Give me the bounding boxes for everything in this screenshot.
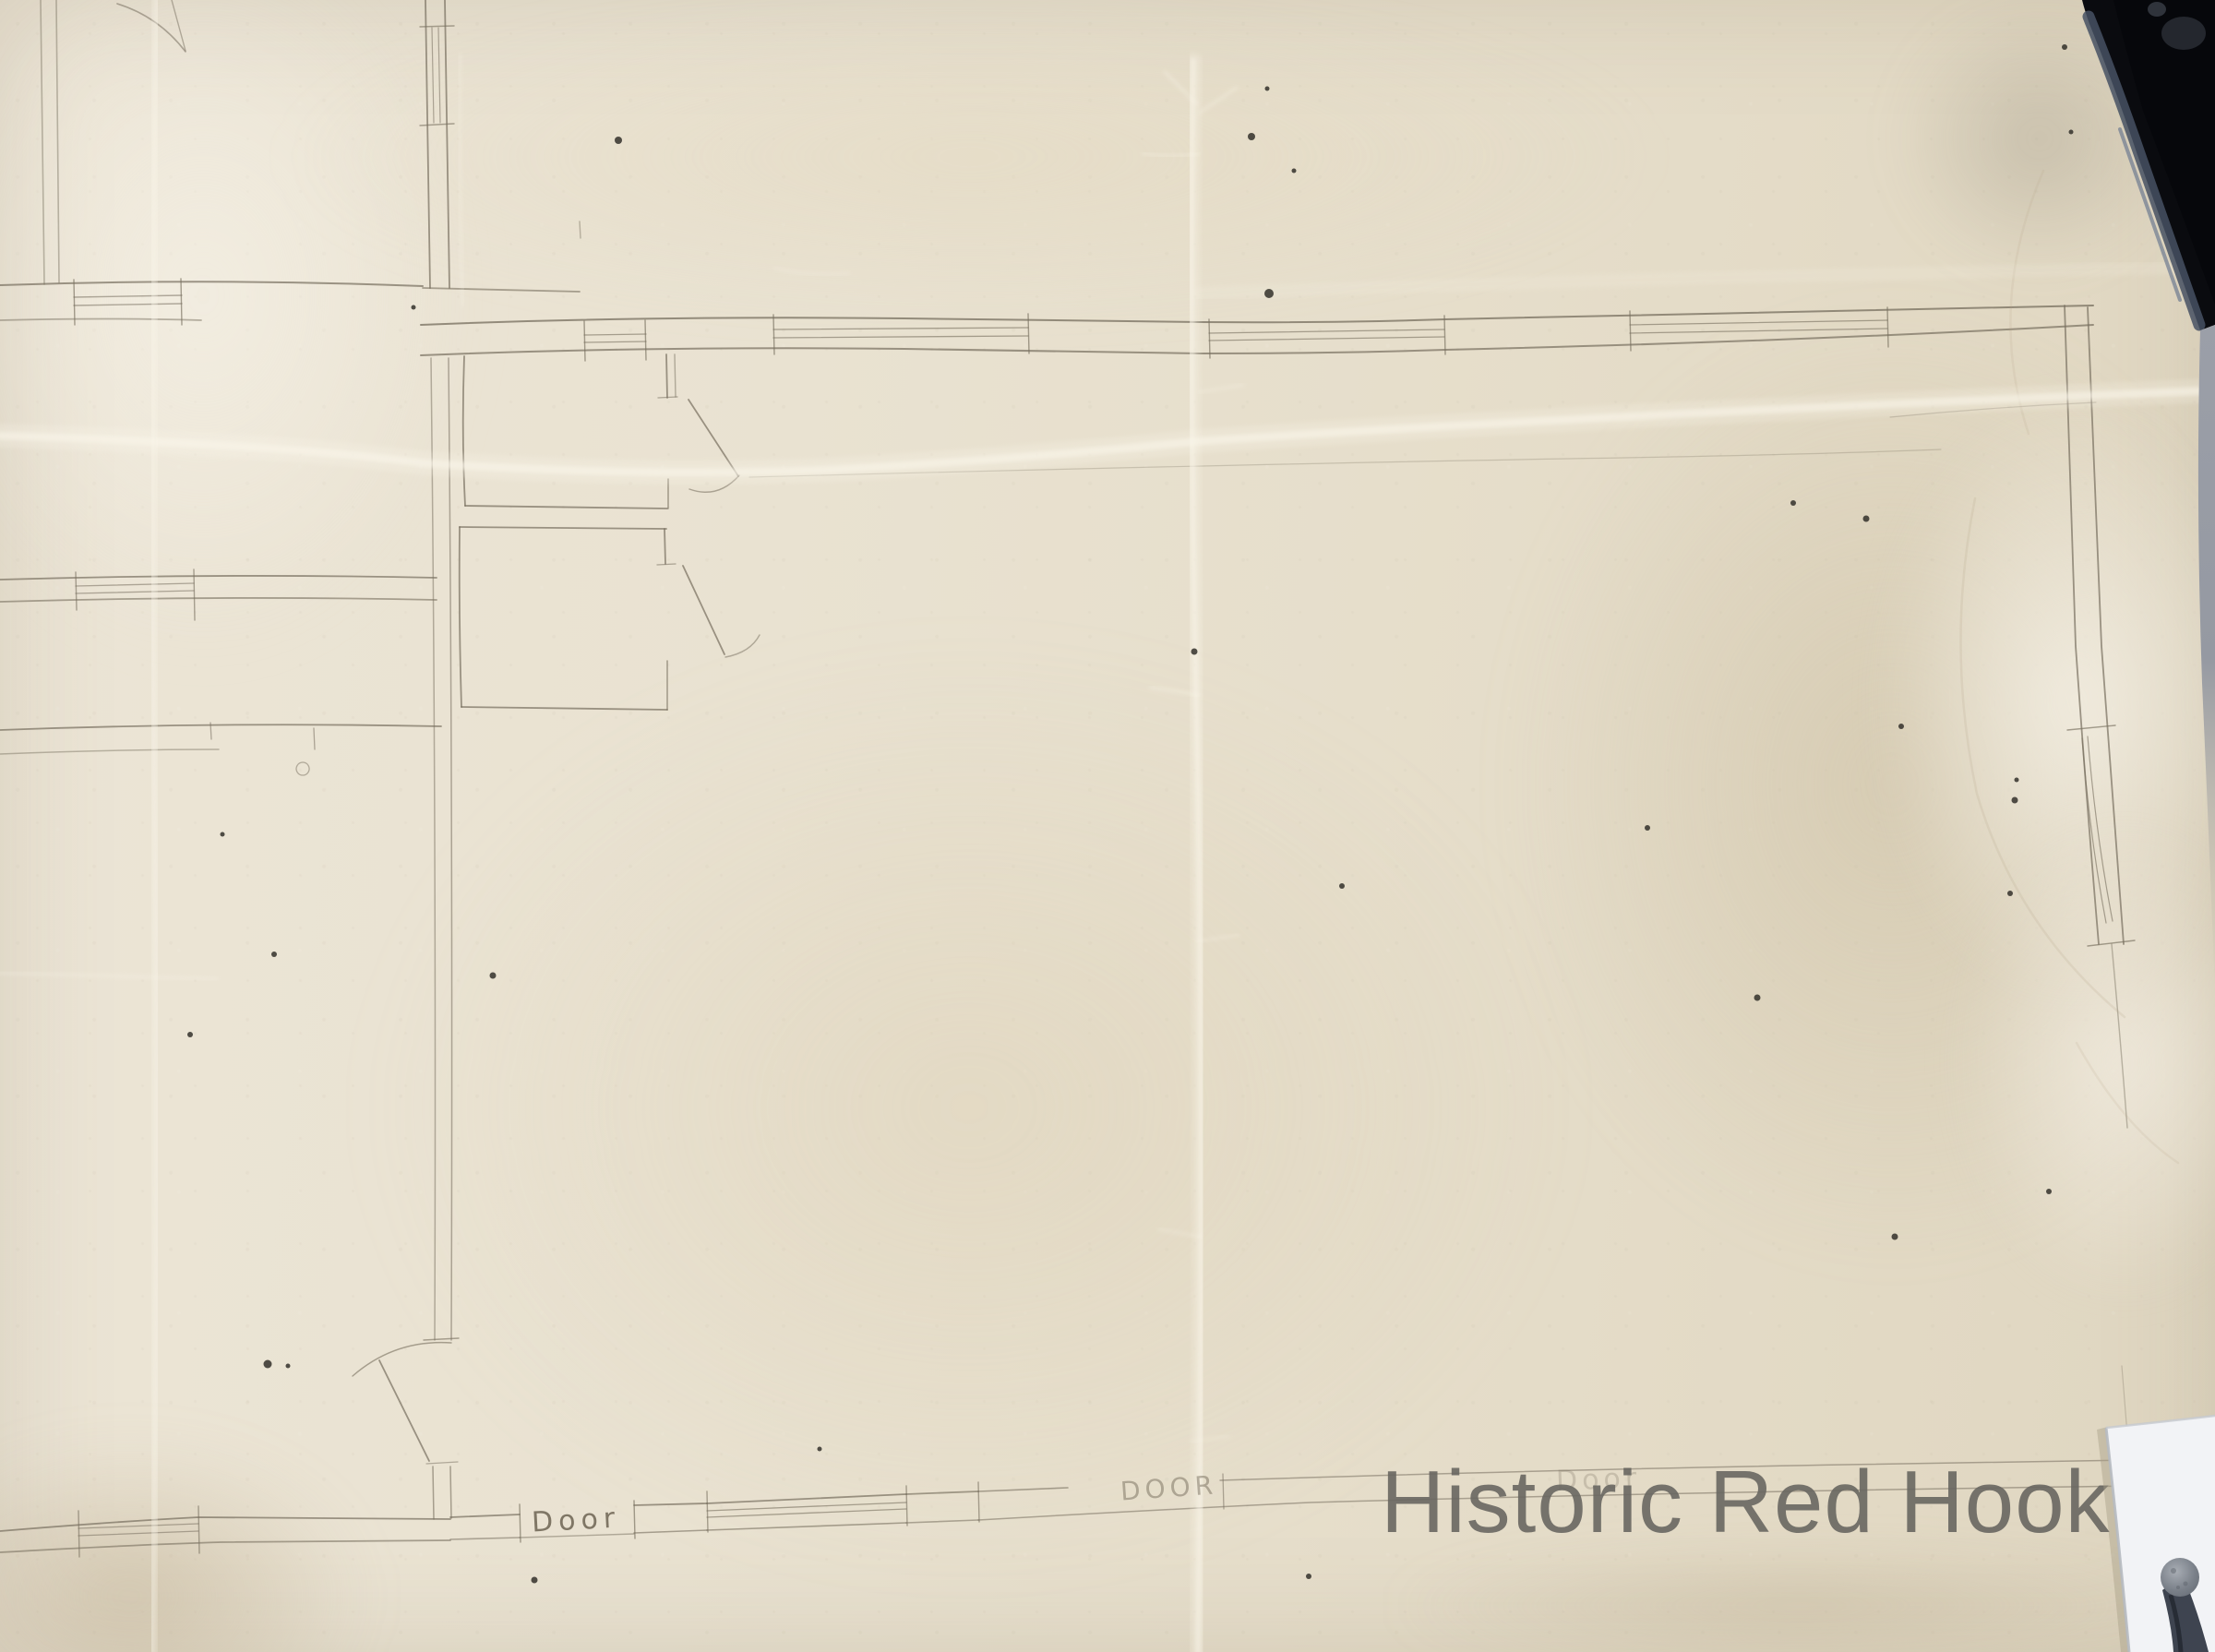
foreground-objects [0,0,2215,1652]
photo-of-floor-plan: Door DOOR Door Historic Red Hook [0,0,2215,1652]
magnet-speckle [2171,1568,2176,1574]
magnet-speckle [2184,1582,2188,1586]
magnet-speckle [2176,1586,2180,1589]
black-object-corner [2082,0,2215,330]
glint-icon [2161,17,2206,50]
round-magnet [2161,1558,2199,1597]
paper-edge-gap [2198,325,2215,992]
glint-small-icon [2148,2,2166,17]
white-paper-corner [2097,1416,2215,1652]
